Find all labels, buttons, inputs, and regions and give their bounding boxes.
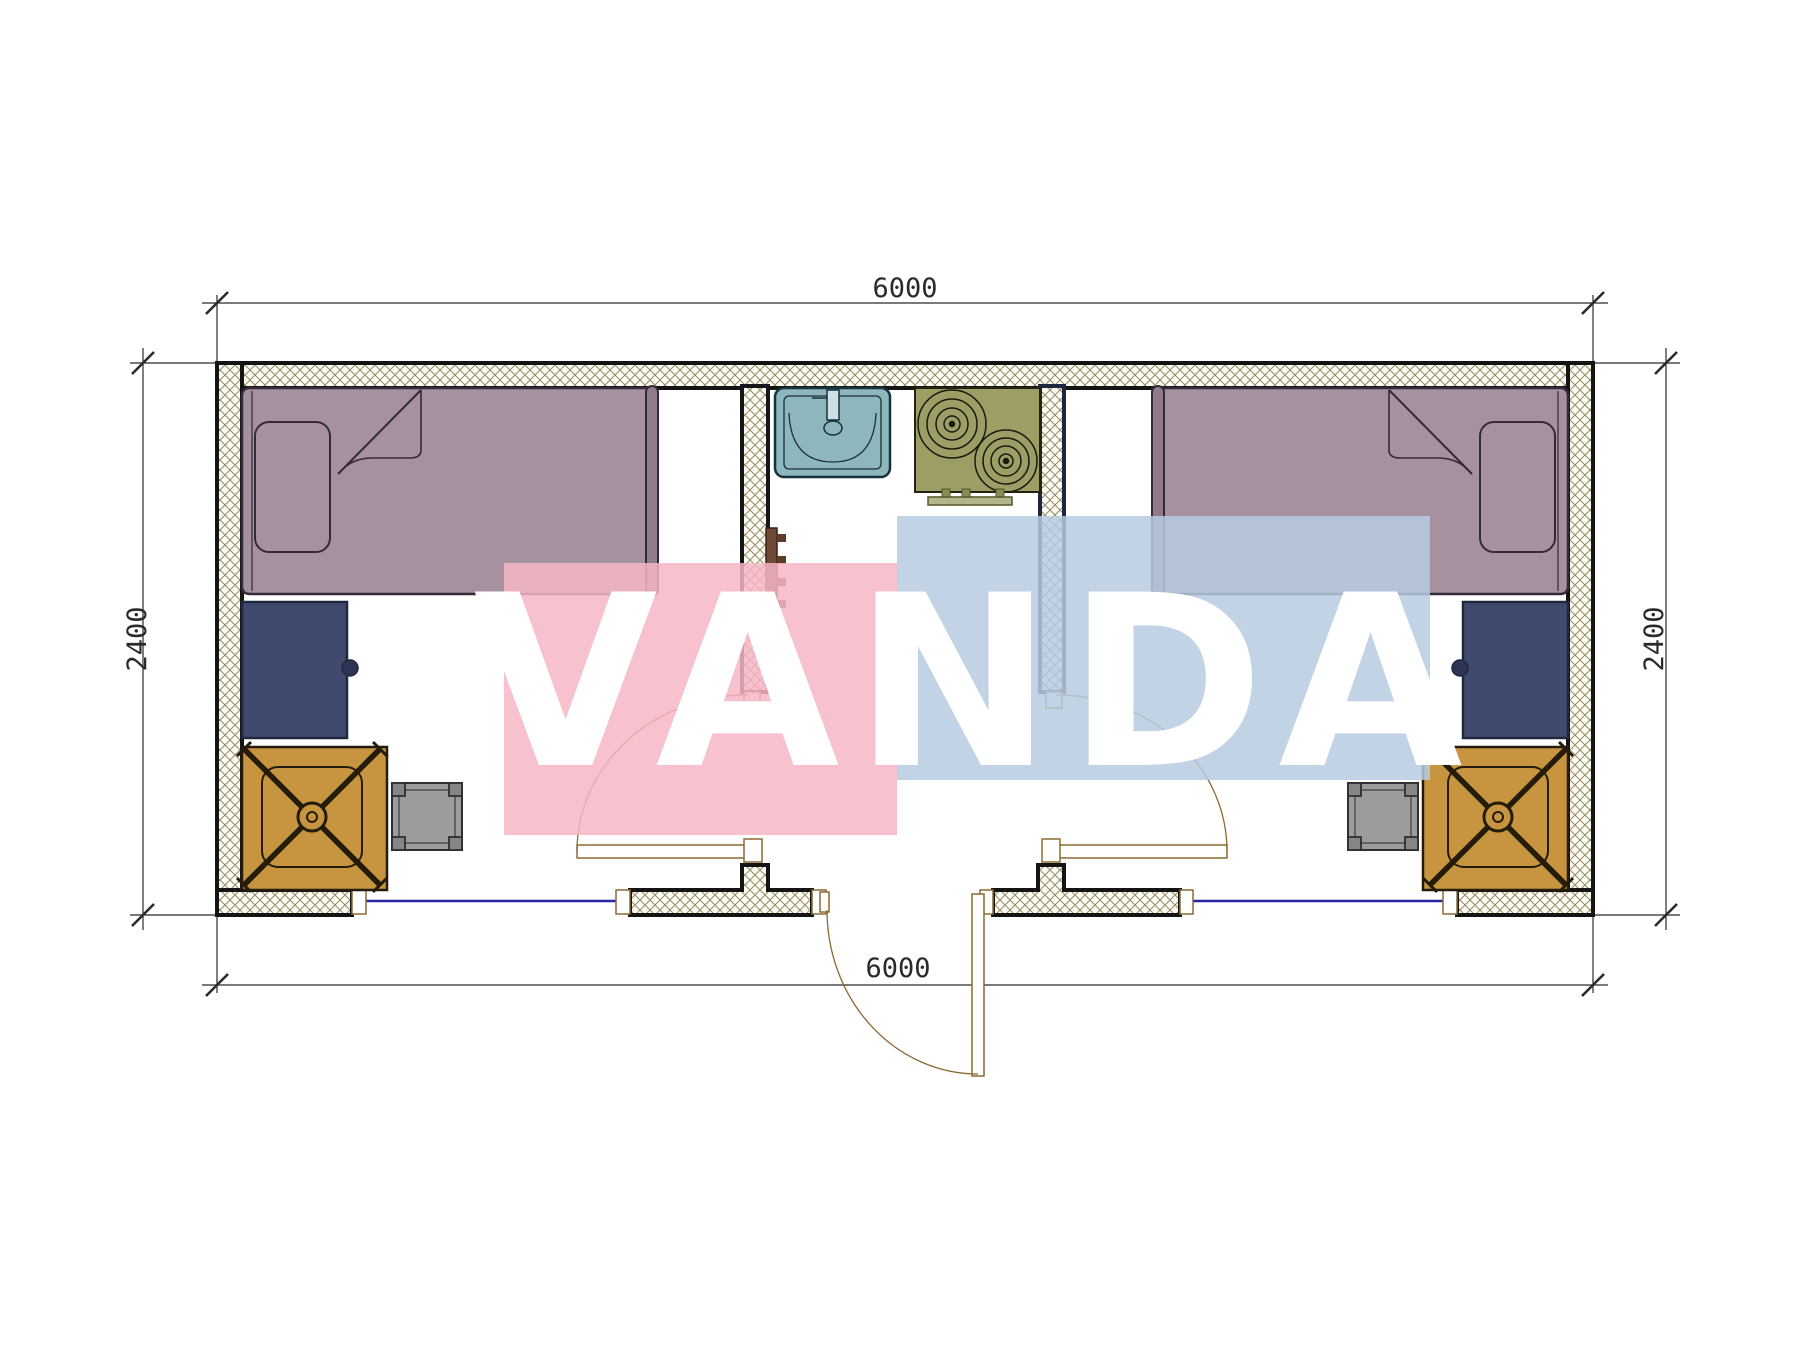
wall-left: [217, 363, 242, 915]
door-leaf: [1056, 845, 1227, 858]
dimension-left-label: 2400: [122, 606, 153, 671]
watermark-text: VANDA: [480, 553, 1470, 813]
sink-faucet: [827, 390, 839, 420]
wall-bottom-left-corner: [217, 890, 352, 915]
windows: [352, 890, 1457, 914]
door-stop: [820, 892, 829, 912]
dimension-right-label: 2400: [1639, 606, 1670, 671]
entrance-door: [820, 892, 984, 1076]
pillow-right: [1480, 422, 1555, 552]
sink: [775, 388, 890, 477]
door-hinge-jamb: [1042, 839, 1060, 862]
wall-bottom-segment-left: [630, 865, 812, 915]
dimension-top-label: 6000: [872, 273, 937, 304]
window-jamb: [1443, 890, 1457, 914]
window-jamb: [352, 890, 366, 914]
floor-plan-canvas: 6000 6000 2400 2400: [0, 0, 1800, 1350]
dimension-bottom-label: 6000: [865, 953, 930, 984]
door-leaf: [577, 845, 748, 858]
window-jamb: [616, 890, 630, 914]
desk-knob-left: [342, 660, 358, 676]
wall-top: [217, 363, 1593, 388]
stool-left: [392, 783, 462, 850]
door-hinge-jamb: [744, 839, 762, 862]
sink-drain-knob: [824, 421, 842, 435]
door-leaf: [972, 894, 984, 1076]
wall-bottom-segment-right: [993, 865, 1180, 915]
chair-area-left: [237, 742, 387, 892]
desk-left: [242, 602, 358, 738]
wall-bottom-right-corner: [1457, 890, 1593, 915]
pillow-left: [255, 422, 330, 552]
stove: [915, 388, 1040, 505]
door-swing-arc: [827, 910, 978, 1074]
window-jamb: [1180, 890, 1193, 914]
wall-right: [1568, 363, 1593, 915]
